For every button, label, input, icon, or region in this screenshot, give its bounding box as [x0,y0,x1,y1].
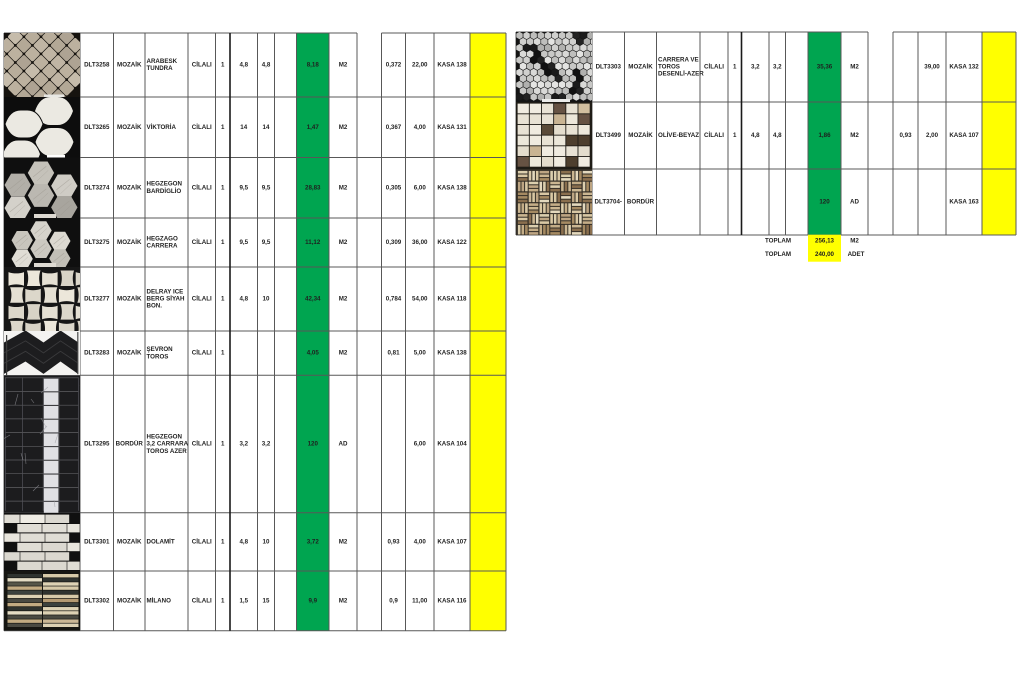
svg-text:4,00: 4,00 [414,538,427,545]
svg-text:DLT3499: DLT3499 [596,132,622,139]
svg-text:2,00: 2,00 [926,132,939,139]
svg-text:10: 10 [263,296,270,303]
svg-text:M2: M2 [339,350,348,357]
svg-text:DLT3303: DLT3303 [596,64,622,71]
svg-text:BERG SİYAH: BERG SİYAH [147,296,185,303]
svg-text:TOPLAM: TOPLAM [765,238,791,245]
svg-text:DLT3258: DLT3258 [84,62,110,69]
svg-text:1: 1 [221,441,225,448]
svg-text:3,2: 3,2 [239,441,248,448]
svg-text:MOZAİK: MOZAİK [117,124,142,131]
svg-text:4,8: 4,8 [751,132,760,139]
svg-text:5,00: 5,00 [414,350,427,357]
svg-text:DLT3704-: DLT3704- [595,199,622,206]
svg-text:BON.: BON. [147,303,163,310]
svg-text:DLT3275: DLT3275 [84,239,110,246]
svg-text:M2: M2 [850,238,859,245]
svg-text:MOZAİK: MOZAİK [628,64,653,71]
svg-text:OLİVE-BEYAZ: OLİVE-BEYAZ [658,132,699,139]
svg-text:4,8: 4,8 [773,132,782,139]
svg-text:9,5: 9,5 [239,184,248,191]
svg-text:3,72: 3,72 [307,538,320,545]
svg-text:4,8: 4,8 [239,62,248,69]
svg-text:KASA 138: KASA 138 [437,350,467,357]
svg-text:0,367: 0,367 [386,124,402,131]
svg-text:KASA 131: KASA 131 [437,124,467,131]
svg-text:HEGZEGON: HEGZEGON [147,181,183,188]
svg-text:DLT3295: DLT3295 [84,441,110,448]
svg-text:39,00: 39,00 [924,64,940,71]
svg-text:6,00: 6,00 [414,441,427,448]
svg-text:22,00: 22,00 [412,62,428,69]
svg-text:240,00: 240,00 [815,251,834,258]
svg-text:9,5: 9,5 [262,239,271,246]
svg-text:DLT3283: DLT3283 [84,350,110,357]
svg-text:TOROS: TOROS [658,64,680,71]
svg-text:TOROS: TOROS [147,353,169,360]
svg-text:1,86: 1,86 [818,132,831,139]
svg-text:TUNDRA: TUNDRA [147,65,174,72]
svg-text:1: 1 [221,296,225,303]
svg-text:1: 1 [221,62,225,69]
svg-text:ARABESK: ARABESK [147,58,178,65]
svg-text:DLT3277: DLT3277 [84,296,110,303]
svg-text:DLT3302: DLT3302 [84,597,110,604]
svg-text:MOZAİK: MOZAİK [117,597,142,604]
svg-text:ŞEVRON: ŞEVRON [147,346,174,353]
svg-text:4,00: 4,00 [414,124,427,131]
svg-text:3,2: 3,2 [262,441,271,448]
svg-text:MİLANO: MİLANO [147,597,172,604]
svg-text:M2: M2 [339,62,348,69]
svg-text:10: 10 [263,538,270,545]
svg-text:MOZAİK: MOZAİK [117,184,142,191]
svg-text:42,34: 42,34 [305,296,321,303]
svg-text:KASA 163: KASA 163 [949,199,979,206]
svg-text:1: 1 [733,132,737,139]
svg-text:KASA 118: KASA 118 [437,296,467,303]
svg-text:1: 1 [221,239,225,246]
svg-text:4,8: 4,8 [262,62,271,69]
svg-text:M2: M2 [339,538,348,545]
svg-text:0,9: 0,9 [389,597,398,604]
svg-text:BORDÜR: BORDÜR [116,441,144,448]
svg-text:CİLALI: CİLALI [192,124,212,131]
svg-text:HEGZEGON: HEGZEGON [147,433,183,440]
svg-text:0,93: 0,93 [899,132,912,139]
svg-text:MOZAİK: MOZAİK [117,350,142,357]
svg-text:CİLALI: CİLALI [192,538,212,545]
svg-text:120: 120 [308,441,319,448]
svg-text:4,8: 4,8 [239,296,248,303]
svg-text:HEGZAGO: HEGZAGO [147,235,178,242]
svg-text:M2: M2 [850,132,859,139]
svg-text:CİLALI: CİLALI [192,597,212,604]
svg-text:54,00: 54,00 [412,296,428,303]
svg-text:4,8: 4,8 [239,538,248,545]
svg-text:M2: M2 [339,184,348,191]
svg-text:KASA 122: KASA 122 [437,239,467,246]
svg-text:1: 1 [221,538,225,545]
svg-text:M2: M2 [339,296,348,303]
svg-text:CİLALI: CİLALI [704,132,724,139]
svg-text:9,5: 9,5 [239,239,248,246]
svg-text:CİLALI: CİLALI [192,350,212,357]
svg-text:CARRERA VE: CARRERA VE [658,56,699,63]
svg-text:KASA 104: KASA 104 [437,441,467,448]
svg-text:M2: M2 [339,239,348,246]
svg-text:MOZAİK: MOZAİK [628,132,653,139]
svg-text:KASA 107: KASA 107 [949,132,979,139]
svg-text:DOLAMİT: DOLAMİT [147,538,175,545]
svg-text:14: 14 [240,124,247,131]
svg-text:3,2: 3,2 [773,64,782,71]
svg-text:CİLALI: CİLALI [192,441,212,448]
svg-text:KASA 107: KASA 107 [437,538,467,545]
svg-text:TOPLAM: TOPLAM [765,251,791,258]
svg-text:DESENLİ-AZER: DESENLİ-AZER [658,71,704,78]
svg-text:KASA 138: KASA 138 [437,184,467,191]
svg-text:1: 1 [221,124,225,131]
svg-text:0,93: 0,93 [387,538,400,545]
svg-text:1: 1 [733,64,737,71]
svg-text:ADET: ADET [848,251,865,258]
svg-text:KASA 116: KASA 116 [437,597,467,604]
svg-text:TOROS AZER: TOROS AZER [147,448,188,455]
svg-text:8,18: 8,18 [307,62,320,69]
svg-text:DLT3274: DLT3274 [84,184,110,191]
svg-text:BORDÜR: BORDÜR [627,199,655,206]
svg-text:9,5: 9,5 [262,184,271,191]
svg-text:MOZAİK: MOZAİK [117,239,142,246]
svg-text:11,00: 11,00 [412,597,428,604]
svg-text:0,305: 0,305 [386,184,402,191]
svg-text:28,83: 28,83 [305,184,321,191]
svg-text:3,2 CARRARA: 3,2 CARRARA [147,441,189,448]
svg-text:3,2: 3,2 [751,64,760,71]
svg-text:AD: AD [850,199,859,206]
svg-text:KASA 132: KASA 132 [949,64,979,71]
svg-text:0,784: 0,784 [386,296,402,303]
svg-text:6,00: 6,00 [414,184,427,191]
svg-text:CİLALI: CİLALI [192,239,212,246]
svg-text:1,5: 1,5 [239,597,248,604]
svg-text:DLT3301: DLT3301 [84,538,110,545]
svg-text:35,36: 35,36 [817,64,833,71]
svg-text:15: 15 [263,597,270,604]
svg-text:KASA 138: KASA 138 [437,62,467,69]
svg-text:AD: AD [339,441,348,448]
svg-text:120: 120 [819,199,830,206]
svg-text:9,9: 9,9 [308,597,317,604]
svg-text:1,47: 1,47 [307,124,320,131]
svg-text:4,05: 4,05 [307,350,320,357]
svg-text:DELRAY ICE: DELRAY ICE [147,288,184,295]
svg-text:0,372: 0,372 [386,62,402,69]
svg-text:BARDİGLİO: BARDİGLİO [147,188,182,195]
svg-text:0,81: 0,81 [387,350,400,357]
svg-text:0,309: 0,309 [386,239,402,246]
svg-text:CİLALI: CİLALI [704,64,724,71]
svg-text:MOZAİK: MOZAİK [117,62,142,69]
svg-text:1: 1 [221,184,225,191]
svg-text:M2: M2 [339,124,348,131]
svg-text:36,00: 36,00 [412,239,428,246]
svg-text:256,13: 256,13 [815,238,834,245]
svg-text:1: 1 [221,597,225,604]
svg-text:M2: M2 [850,64,859,71]
svg-text:MOZAİK: MOZAİK [117,296,142,303]
svg-text:VİKTORİA: VİKTORİA [147,124,177,131]
svg-text:DLT3265: DLT3265 [84,124,110,131]
svg-text:CİLALI: CİLALI [192,296,212,303]
svg-text:11,12: 11,12 [305,239,321,246]
svg-text:14: 14 [263,124,270,131]
svg-text:CARRERA: CARRERA [147,243,178,250]
svg-text:CİLALI: CİLALI [192,184,212,191]
svg-text:M2: M2 [339,597,348,604]
svg-text:1: 1 [221,350,225,357]
svg-text:MOZAİK: MOZAİK [117,538,142,545]
svg-text:CİLALI: CİLALI [192,62,212,69]
